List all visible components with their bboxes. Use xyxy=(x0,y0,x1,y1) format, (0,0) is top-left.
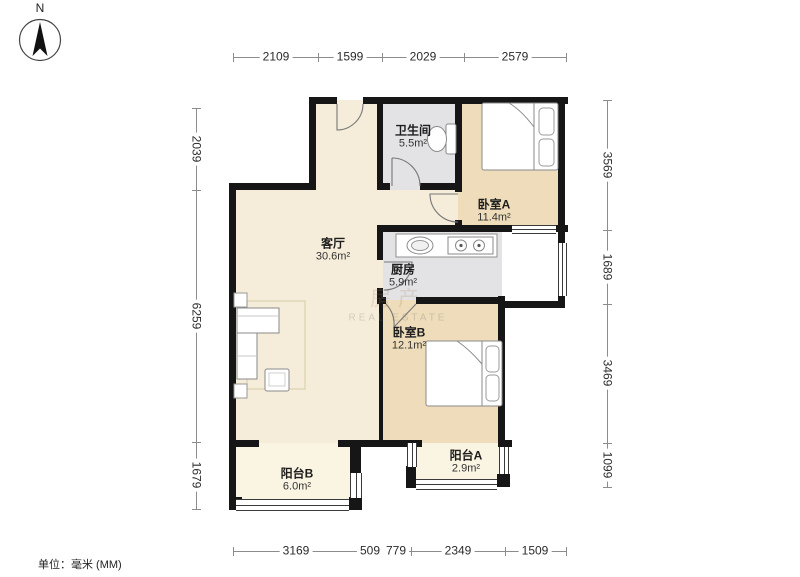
dimension-label: 1099 xyxy=(601,449,614,482)
dimension-tick xyxy=(192,108,201,109)
dimension-label: 2579 xyxy=(499,51,532,64)
fixtures-overlay xyxy=(0,0,800,577)
dimension-label: 6259 xyxy=(190,300,203,333)
dimension-tick xyxy=(603,100,612,101)
dimension-label: 509 xyxy=(357,545,383,558)
dimension-label: 2029 xyxy=(407,51,440,64)
dimension-label: 1679 xyxy=(190,459,203,492)
dimension-label: 779 xyxy=(383,545,409,558)
dimension-tick xyxy=(603,304,612,305)
dimension-label: 1689 xyxy=(601,251,614,284)
dimension-tick xyxy=(411,547,412,556)
toilet-icon xyxy=(428,124,457,154)
bedroom-b-door xyxy=(386,304,416,327)
dimension-tick xyxy=(192,442,201,443)
dimension-tick xyxy=(382,53,383,62)
units-note: 单位：毫米 (MM) xyxy=(38,556,122,572)
dimension-tick xyxy=(603,443,612,444)
dimension-tick xyxy=(464,53,465,62)
living-room-sofa-set xyxy=(234,293,305,398)
pillow xyxy=(486,346,499,372)
dimension-label: 1509 xyxy=(519,545,552,558)
bathroom-door xyxy=(392,158,420,186)
stove-icon xyxy=(448,237,493,254)
side-table xyxy=(234,384,247,398)
dimension-tick xyxy=(233,53,234,62)
sofa-chaise xyxy=(237,308,279,333)
dimension-label: 2109 xyxy=(260,51,293,64)
dimension-tick xyxy=(566,53,567,62)
dimension-tick xyxy=(566,547,567,556)
bed-b xyxy=(426,341,502,406)
entry-door xyxy=(337,104,363,130)
dimension-label: 3469 xyxy=(601,357,614,390)
dimension-tick xyxy=(318,53,319,62)
bedroom-a-door xyxy=(430,194,458,222)
pillow xyxy=(486,375,499,401)
dimension-tick xyxy=(603,487,612,488)
bed-a xyxy=(482,103,558,170)
sink-basin xyxy=(412,241,429,251)
pillow xyxy=(539,108,554,135)
floorplan-canvas: N xyxy=(0,0,800,577)
pillow xyxy=(539,139,554,166)
dimension-label: 2349 xyxy=(442,545,475,558)
dimension-tick xyxy=(192,509,201,510)
dimension-tick xyxy=(233,547,234,556)
dimension-label: 3569 xyxy=(601,149,614,182)
kitchen-door xyxy=(384,262,412,290)
dimension-tick xyxy=(603,230,612,231)
kitchen-counter xyxy=(396,234,497,257)
dimension-label: 2039 xyxy=(190,133,203,166)
side-table xyxy=(234,293,247,307)
dimension-tick xyxy=(192,190,201,191)
dimension-label: 3169 xyxy=(280,545,313,558)
dimension-tick xyxy=(505,547,506,556)
dimension-label: 1599 xyxy=(334,51,367,64)
